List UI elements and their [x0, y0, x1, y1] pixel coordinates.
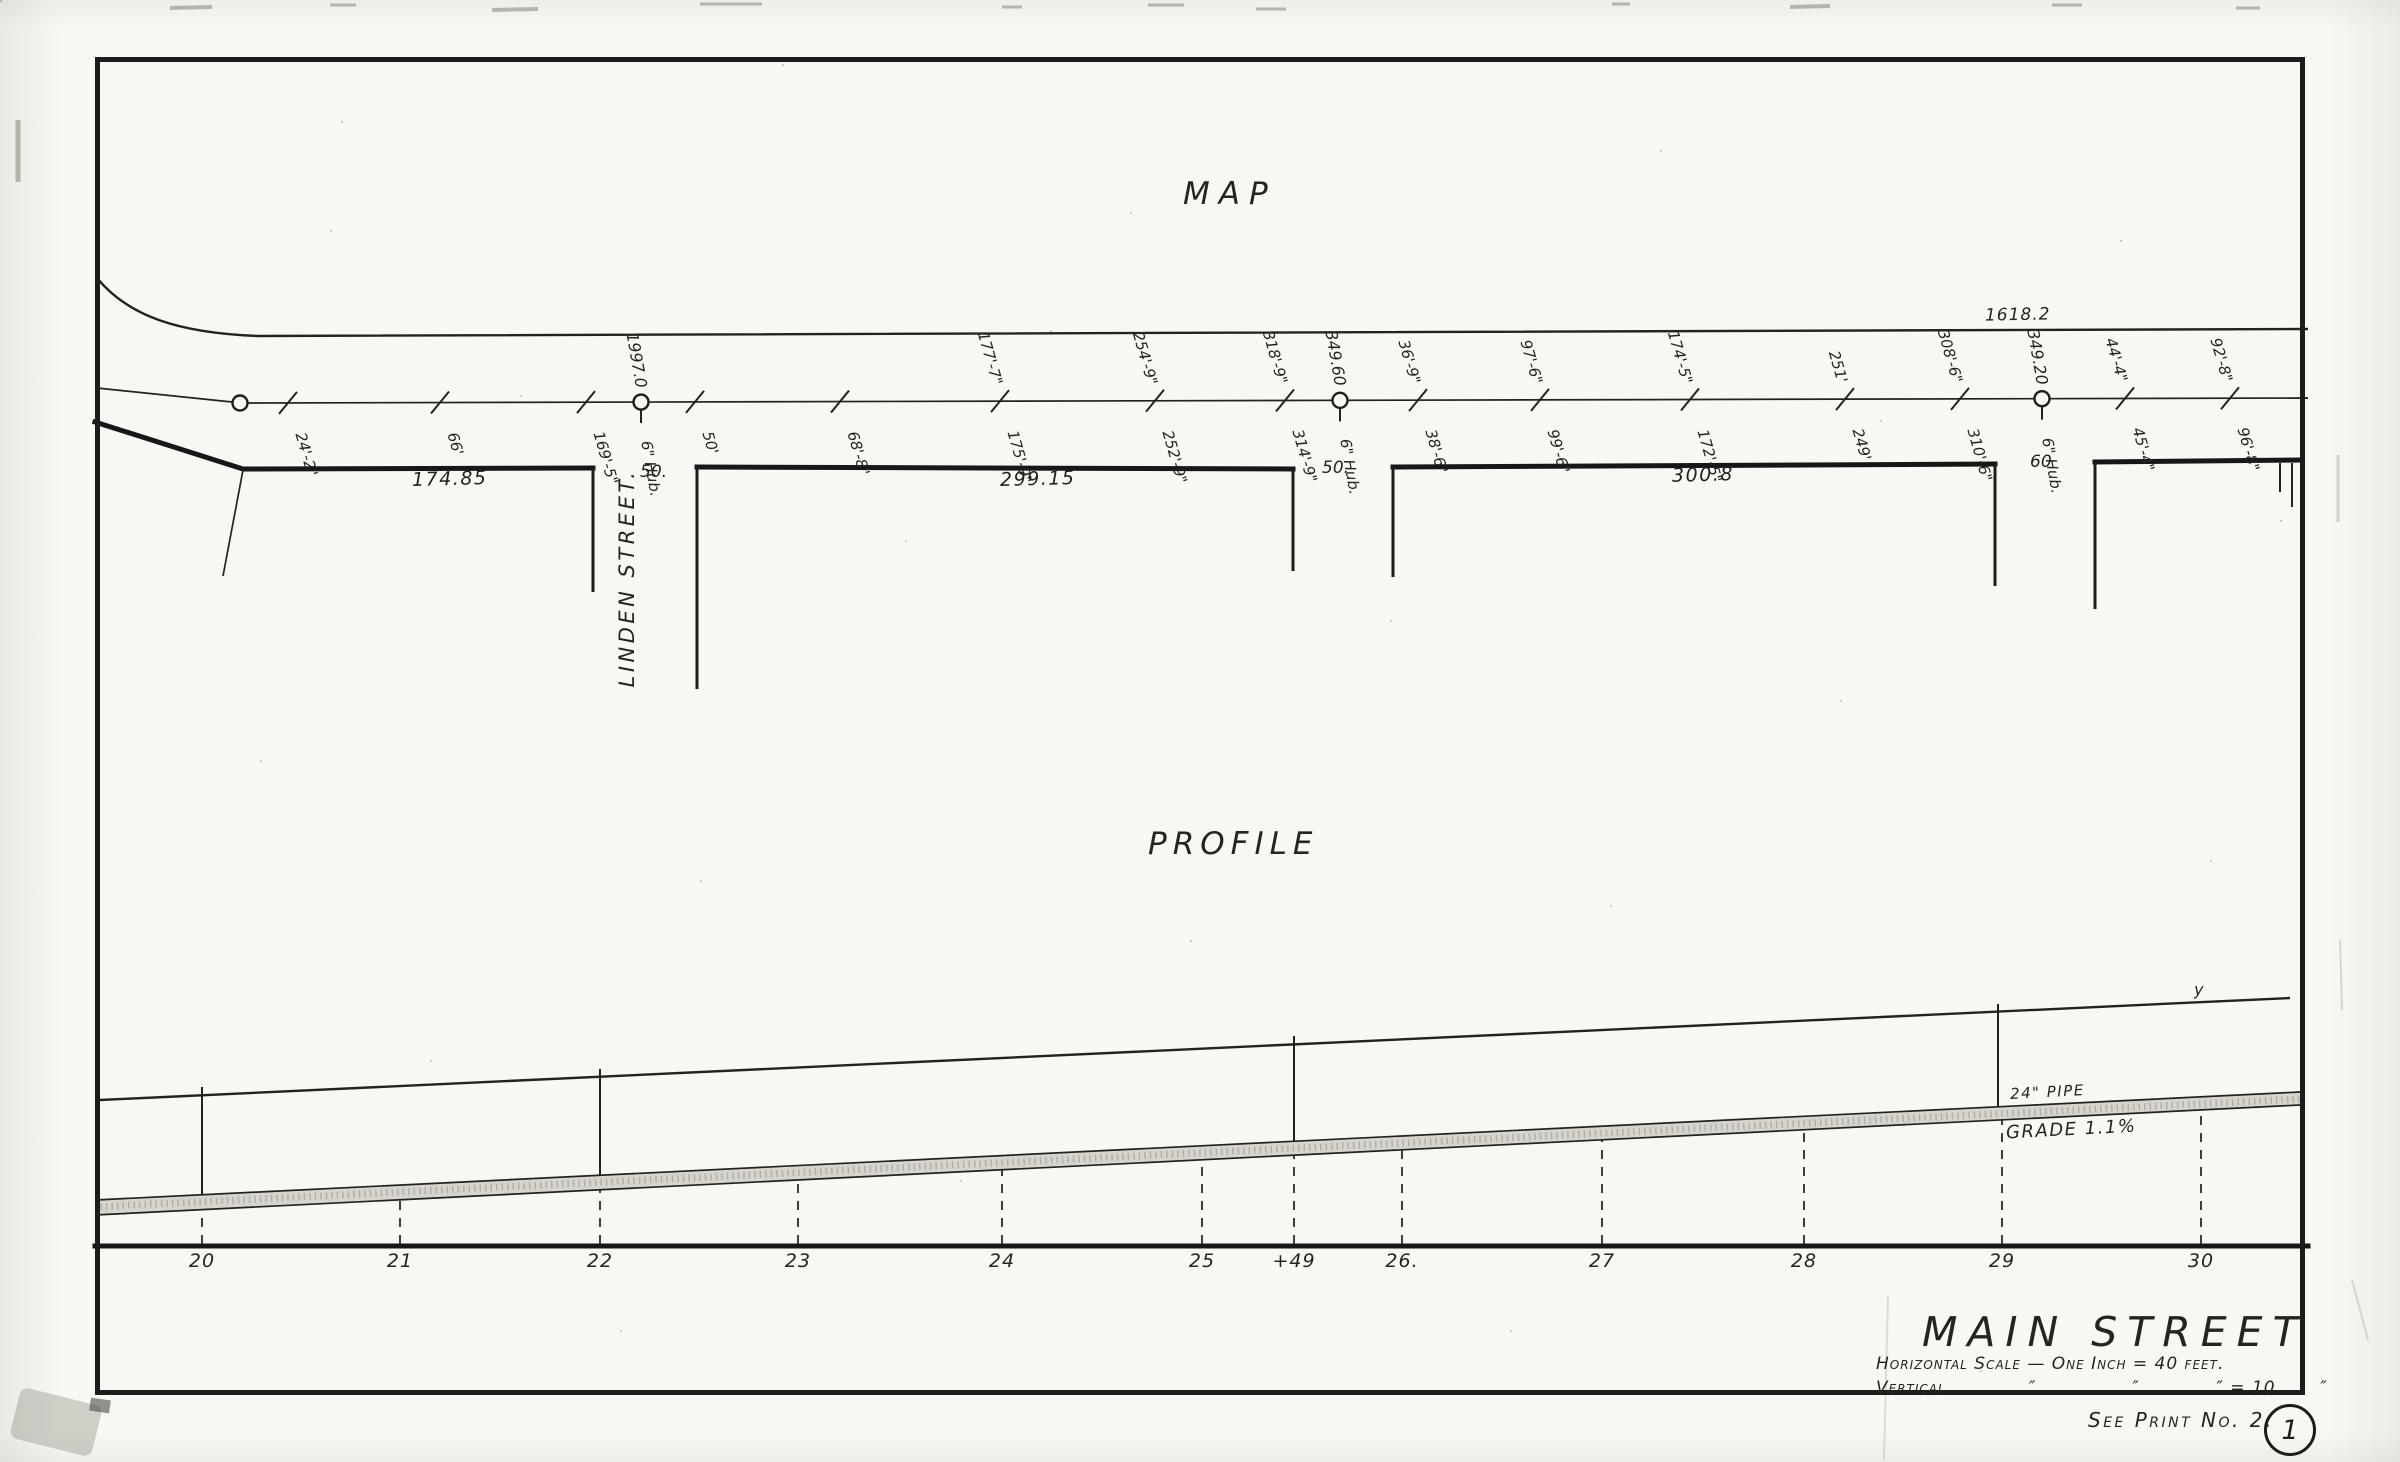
- scale-vertical-note: Vertical ″ ″ ″ = 10 ″: [1876, 1378, 2328, 1398]
- sheet-number-badge: 1: [2264, 1404, 2316, 1456]
- scan-smudge-dark: [89, 1398, 111, 1414]
- frontage-distance-label: 174.85: [412, 467, 488, 491]
- map-section-title: MAP: [1183, 176, 1277, 212]
- north-line-distance-label: 1618.2: [1985, 304, 2051, 325]
- station-label: 28: [1774, 1250, 1834, 1272]
- station-label: 30: [2171, 1250, 2231, 1272]
- linden-street-label: LINDEN STREET.: [615, 469, 639, 688]
- frontage-distance-label: 300.8: [1672, 463, 1734, 487]
- frontage-distance-label: 299.15: [1000, 467, 1076, 491]
- street-width-label: 60: [2030, 452, 2052, 472]
- sheet-number: 1: [2281, 1415, 2298, 1446]
- station-label: 29: [1972, 1250, 2032, 1272]
- station-label: 20: [172, 1250, 232, 1272]
- station-label: 23: [768, 1250, 828, 1272]
- scale-horizontal-note: Horizontal Scale — One Inch = 40 feet.: [1876, 1354, 2224, 1374]
- station-label: +49: [1264, 1250, 1324, 1272]
- surface-check-mark: y: [2194, 980, 2203, 999]
- station-label: 27: [1572, 1250, 1632, 1272]
- see-print-note: See Print No. 2.: [2088, 1408, 2274, 1432]
- sheet-border: [95, 57, 2305, 1395]
- station-label: 21: [370, 1250, 430, 1272]
- station-label: 22: [570, 1250, 630, 1272]
- station-label: 26.: [1372, 1250, 1432, 1272]
- station-label: 25: [1172, 1250, 1232, 1272]
- station-label: 24: [972, 1250, 1032, 1272]
- street-width-label: 50.: [1322, 458, 1349, 478]
- drawing-sheet: MAP PROFILE 1618.2 LINDEN STREET. 50. 24…: [0, 0, 2400, 1462]
- sheet-title: MAIN STREET: [1922, 1308, 2308, 1356]
- profile-section-title: PROFILE: [1148, 826, 1318, 862]
